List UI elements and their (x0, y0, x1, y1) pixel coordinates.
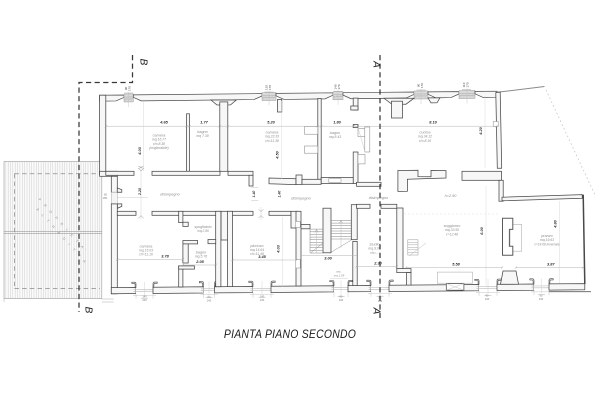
svg-text:240: 240 (539, 297, 544, 301)
svg-text:A: A (371, 60, 382, 68)
svg-text:4.50: 4.50 (275, 150, 280, 159)
svg-text:2.30: 2.30 (373, 261, 382, 266)
svg-text:B: B (137, 59, 148, 66)
svg-text:170: 170 (128, 86, 132, 91)
svg-text:4.65: 4.65 (159, 119, 168, 124)
svg-text:ch=8.16: ch=8.16 (419, 139, 431, 143)
svg-text:disimpegno: disimpegno (291, 196, 310, 200)
svg-text:ch=11.49: ch=11.49 (250, 252, 264, 256)
svg-text:mq.8.43: mq.8.43 (329, 135, 341, 139)
svg-text:mq.5.76: mq.5.76 (195, 255, 207, 259)
svg-text:mq 7.39: mq 7.39 (196, 134, 208, 138)
svg-text:disimpegno: disimpegno (369, 196, 388, 200)
svg-text:c=12.48: c=12.48 (446, 232, 458, 236)
svg-text:ch=...: ch=... (370, 251, 378, 255)
svg-text:B: B (83, 307, 94, 314)
svg-text:1.77: 1.77 (200, 119, 208, 124)
svg-text:240: 240 (339, 298, 344, 302)
svg-text:240: 240 (207, 298, 212, 302)
svg-text:2.05: 2.05 (195, 259, 204, 264)
svg-text:PIANTA PIANO SECONDO: PIANTA PIANO SECONDO (224, 328, 356, 341)
svg-text:189: 189 (103, 196, 108, 200)
svg-text:(migliorabile): (migliorabile) (149, 146, 168, 150)
svg-text:ch=11.10: ch=11.10 (139, 253, 153, 257)
svg-text:170: 170 (337, 84, 341, 89)
svg-text:mq 1.59: mq 1.59 (334, 274, 345, 278)
svg-text:140: 140 (260, 295, 265, 299)
svg-text:140: 140 (142, 295, 147, 299)
svg-text:3.87: 3.87 (547, 262, 555, 267)
svg-text:8.10: 8.10 (429, 119, 437, 124)
svg-text:1.40: 1.40 (252, 191, 256, 198)
svg-text:3.78: 3.78 (161, 254, 169, 259)
svg-text:4.03: 4.03 (275, 244, 280, 253)
svg-text:240: 240 (485, 297, 490, 301)
svg-text:1.40: 1.40 (278, 191, 282, 198)
svg-text:4.80: 4.80 (552, 219, 557, 228)
svg-text:1.80: 1.80 (333, 119, 341, 124)
svg-text:240: 240 (260, 298, 265, 302)
svg-text:240: 240 (142, 298, 147, 302)
svg-text:170: 170 (268, 85, 272, 90)
svg-text:4.03: 4.03 (137, 146, 142, 155)
svg-text:A: A (371, 307, 382, 315)
svg-text:4.20: 4.20 (478, 126, 483, 135)
svg-text:170: 170 (420, 83, 424, 88)
svg-text:ch=11.38: ch=11.38 (265, 139, 279, 143)
svg-text:h=2.90: h=2.90 (445, 194, 458, 198)
svg-text:mq.2.86: mq.2.86 (197, 229, 209, 233)
svg-text:2.20: 2.20 (138, 188, 142, 196)
svg-text:6.00: 6.00 (479, 226, 484, 234)
svg-text:disimpegno: disimpegno (160, 193, 179, 197)
svg-text:3.00: 3.00 (324, 255, 332, 260)
svg-text:c=14.08 invernale: c=14.08 invernale (534, 242, 559, 246)
svg-text:5.20: 5.20 (267, 119, 275, 124)
svg-text:170: 170 (466, 82, 470, 87)
svg-text:5.58: 5.58 (452, 262, 460, 267)
